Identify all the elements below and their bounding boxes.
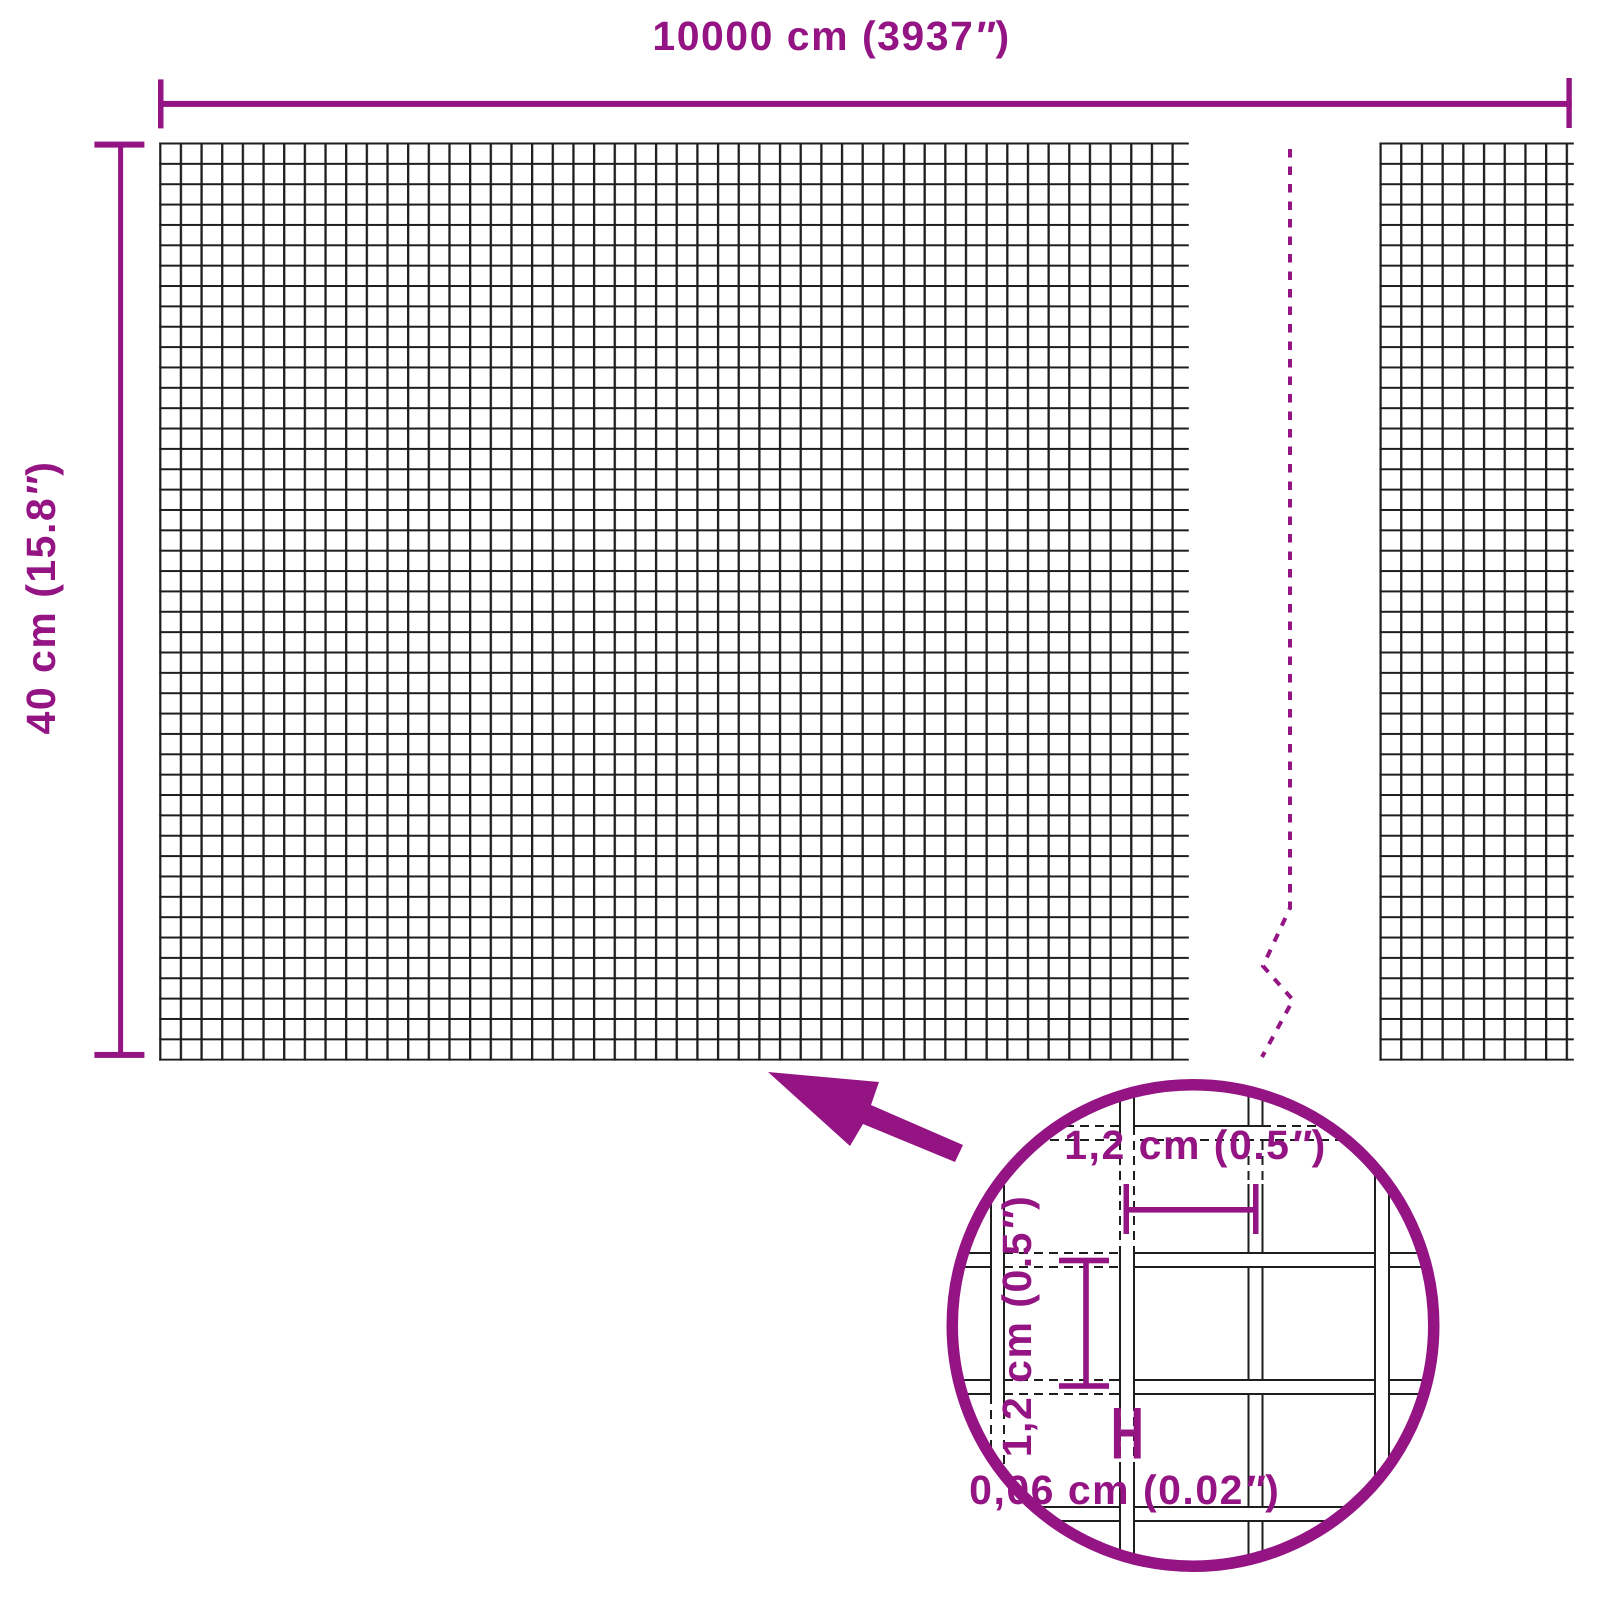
svg-text:1,2 cm (0.5″): 1,2 cm (0.5″) (994, 1195, 1040, 1457)
svg-text:40 cm (15.8″): 40 cm (15.8″) (18, 461, 64, 735)
svg-text:1,2 cm (0.5″): 1,2 cm (0.5″) (1064, 1122, 1326, 1168)
svg-text:0,06 cm (0.02″): 0,06 cm (0.02″) (969, 1467, 1280, 1513)
svg-text:10000 cm (3937″): 10000 cm (3937″) (652, 13, 1010, 59)
